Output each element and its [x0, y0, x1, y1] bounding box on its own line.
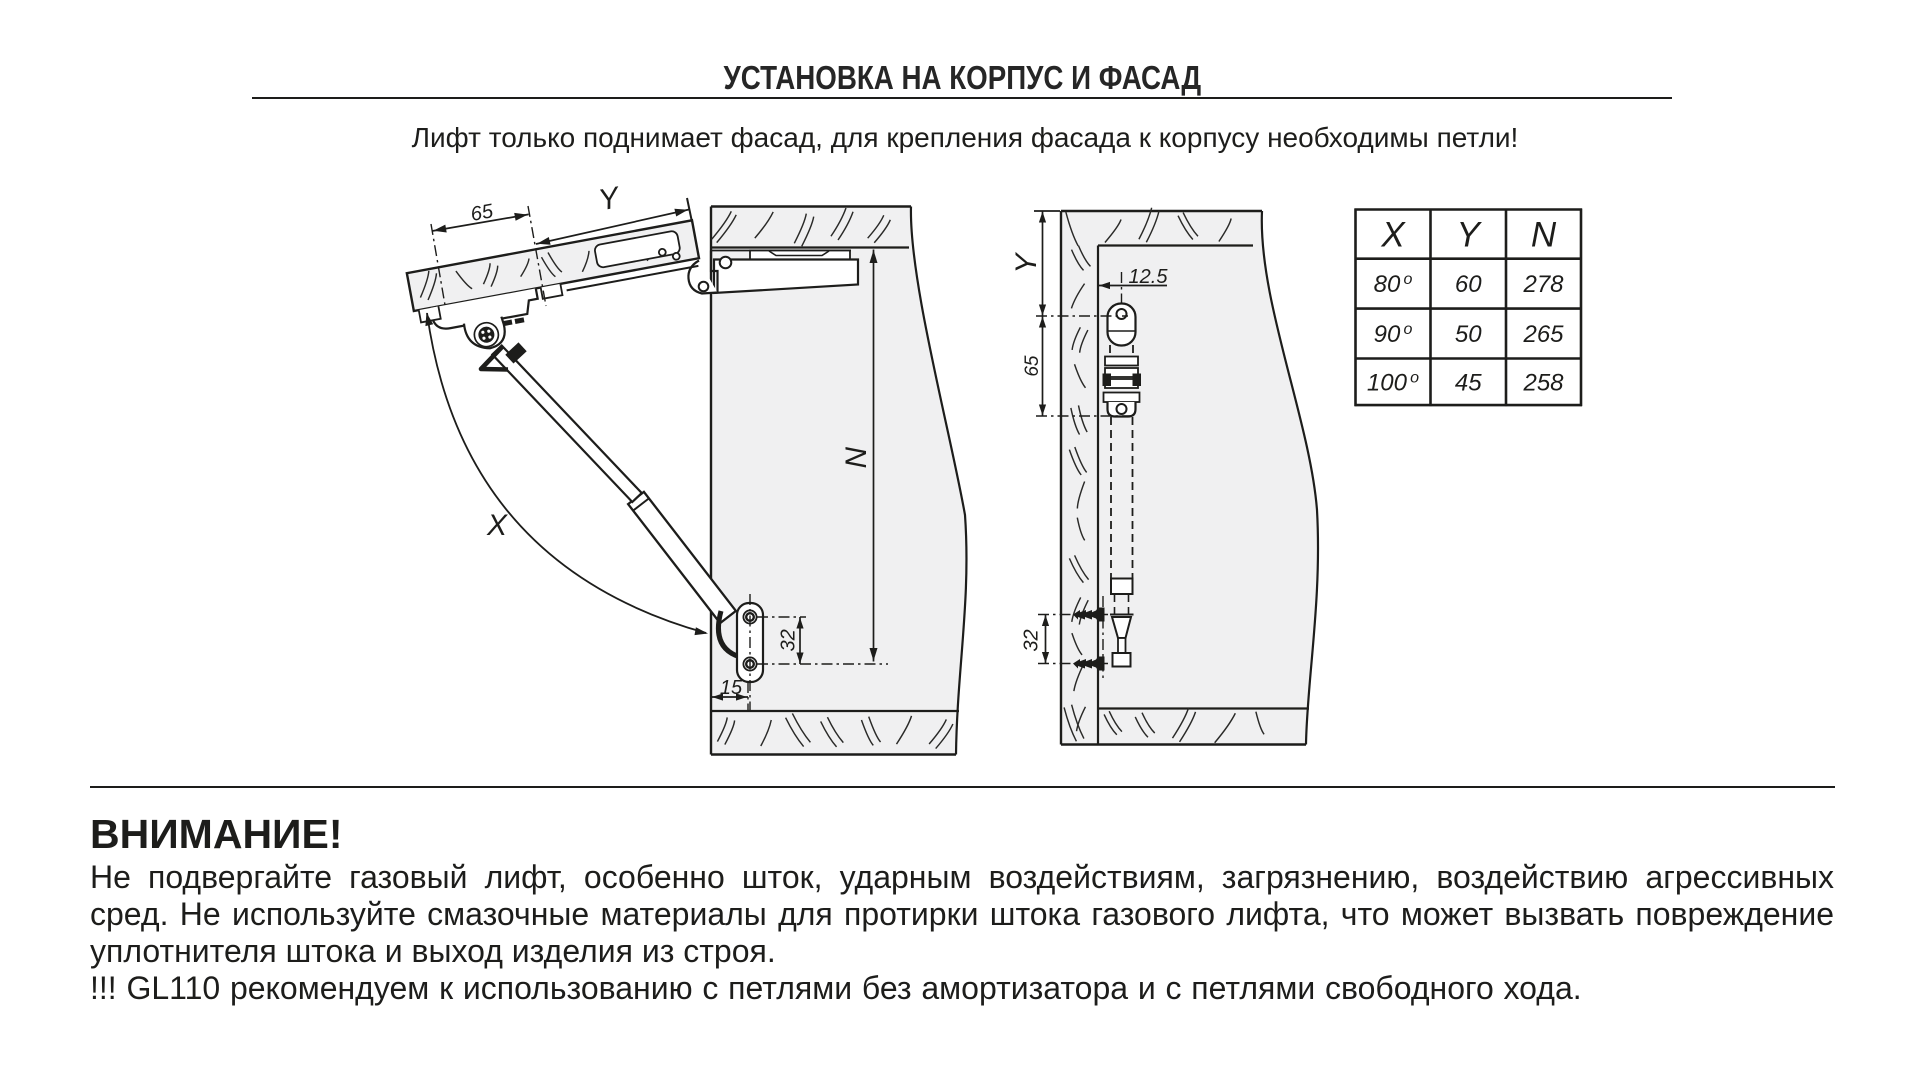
svg-text:X: X	[1380, 216, 1406, 255]
svg-text:60: 60	[1455, 271, 1482, 298]
svg-text:50: 50	[1455, 321, 1482, 348]
svg-text:X: X	[486, 509, 508, 542]
svg-text:65: 65	[469, 200, 496, 226]
svg-text:Y: Y	[596, 181, 624, 217]
svg-text:265: 265	[1522, 321, 1564, 348]
svg-text:32: 32	[777, 629, 799, 651]
svg-text:65: 65	[1022, 355, 1043, 377]
svg-text:278: 278	[1522, 271, 1564, 298]
svg-text:Y: Y	[1457, 216, 1483, 255]
svg-text:32: 32	[1020, 629, 1042, 651]
svg-text:N: N	[840, 446, 873, 468]
svg-text:12.5: 12.5	[1129, 266, 1169, 288]
svg-text:N: N	[1531, 216, 1557, 255]
svg-text:15: 15	[720, 677, 743, 699]
svg-text:258: 258	[1522, 369, 1564, 396]
svg-text:Y: Y	[1010, 252, 1043, 274]
svg-text:45: 45	[1455, 369, 1482, 396]
